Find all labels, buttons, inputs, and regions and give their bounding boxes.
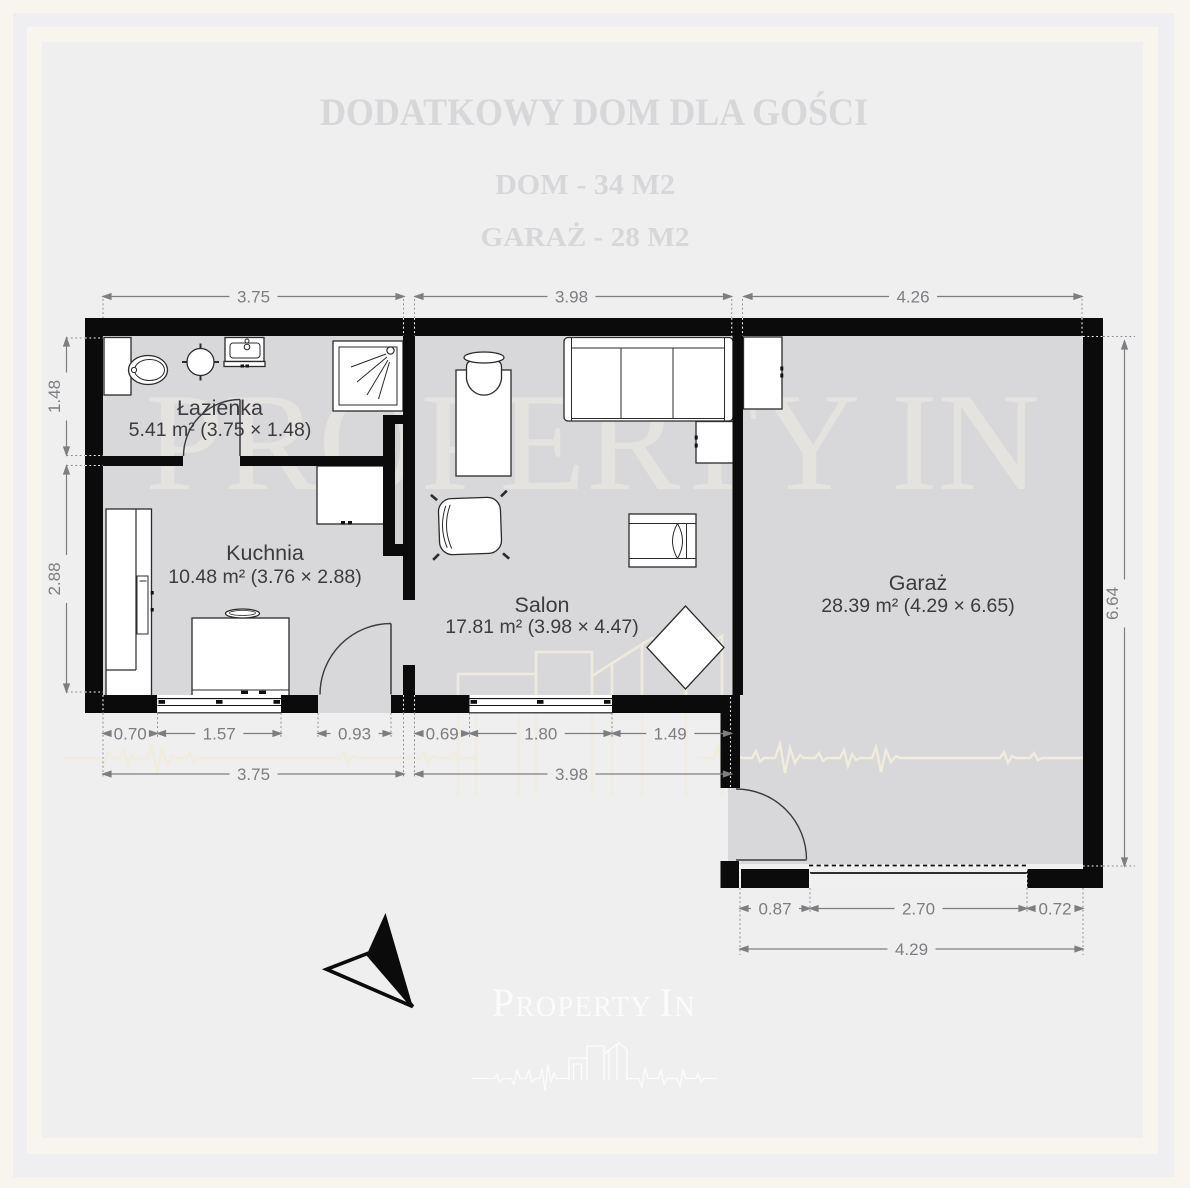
svg-text:0.72: 0.72 — [1038, 900, 1071, 919]
svg-text:4.26: 4.26 — [896, 288, 929, 307]
svg-text:Kuchnia: Kuchnia — [226, 541, 304, 565]
svg-text:0.69: 0.69 — [426, 725, 459, 744]
svg-text:Garaż: Garaż — [889, 571, 948, 595]
svg-text:Łazienka: Łazienka — [177, 396, 263, 420]
svg-text:PROPERTY IN: PROPERTY IN — [492, 980, 696, 1025]
svg-text:DODATKOWY DOM DLA GOŚCI: DODATKOWY DOM DLA GOŚCI — [320, 90, 868, 134]
svg-text:1.49: 1.49 — [654, 725, 687, 744]
svg-text:17.81 m² (3.98 × 4.47): 17.81 m² (3.98 × 4.47) — [445, 616, 639, 638]
svg-text:2.88: 2.88 — [45, 562, 64, 595]
svg-text:3.75: 3.75 — [237, 765, 270, 784]
svg-text:5.41 m² (3.75 × 1.48): 5.41 m² (3.75 × 1.48) — [129, 419, 312, 441]
svg-text:6.64: 6.64 — [1103, 587, 1122, 620]
svg-text:1.57: 1.57 — [203, 725, 236, 744]
svg-text:3.98: 3.98 — [555, 288, 588, 307]
svg-text:2.70: 2.70 — [902, 900, 935, 919]
svg-text:4.29: 4.29 — [895, 940, 928, 959]
svg-text:10.48 m² (3.76 × 2.88): 10.48 m² (3.76 × 2.88) — [168, 566, 362, 588]
svg-text:0.93: 0.93 — [338, 725, 371, 744]
svg-text:DOM - 34 M2: DOM - 34 M2 — [495, 170, 675, 201]
svg-text:GARAŻ - 28 M2: GARAŻ - 28 M2 — [481, 222, 690, 252]
svg-text:1.48: 1.48 — [45, 380, 64, 413]
svg-text:Salon: Salon — [515, 593, 570, 617]
svg-text:1.80: 1.80 — [524, 725, 557, 744]
svg-text:0.70: 0.70 — [114, 725, 147, 744]
svg-text:3.75: 3.75 — [237, 288, 270, 307]
svg-text:3.98: 3.98 — [555, 765, 588, 784]
svg-text:28.39 m² (4.29 × 6.65): 28.39 m² (4.29 × 6.65) — [821, 595, 1015, 617]
svg-text:0.87: 0.87 — [758, 900, 791, 919]
